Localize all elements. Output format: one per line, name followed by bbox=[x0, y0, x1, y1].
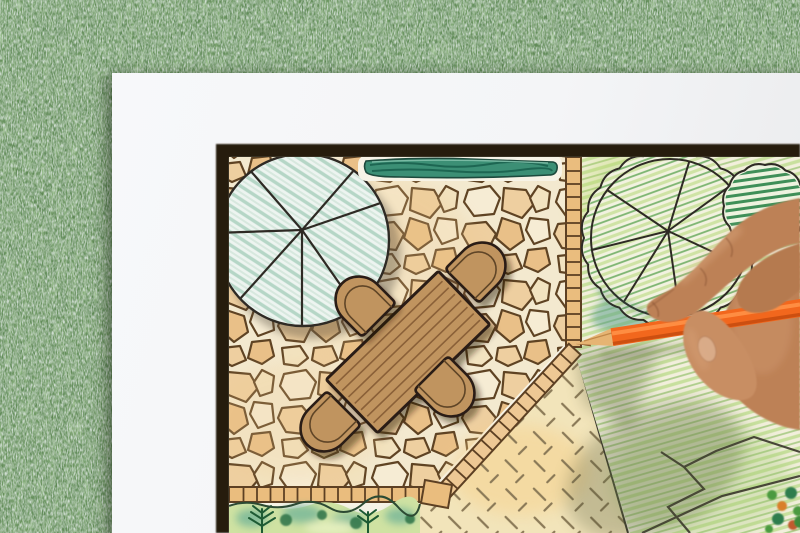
garden-plan-drawing bbox=[0, 0, 800, 533]
hedge-strip bbox=[358, 155, 562, 181]
edging-vertical bbox=[566, 157, 581, 347]
edging-corner-block bbox=[421, 480, 452, 508]
photo-scene bbox=[0, 0, 800, 533]
